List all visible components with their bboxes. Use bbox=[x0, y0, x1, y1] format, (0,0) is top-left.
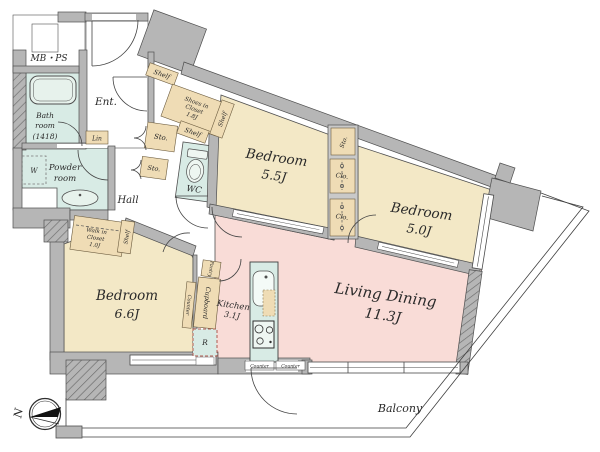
counter-tab-left-label: Counter bbox=[250, 364, 269, 370]
kitchen-board bbox=[263, 290, 275, 316]
powder-sink bbox=[62, 190, 98, 206]
powder-faucet bbox=[79, 194, 82, 197]
gap-entrance bbox=[92, 14, 136, 20]
floorplan-svg: N MB・PS Bath room (1418) Ent. Hall Lin P… bbox=[0, 0, 600, 452]
wall-balcony-hatched-block bbox=[66, 360, 106, 400]
north-compass: N bbox=[11, 399, 61, 430]
refrigerator-label: R bbox=[201, 338, 208, 347]
bathtub bbox=[30, 76, 76, 104]
storage2-door-b bbox=[131, 170, 141, 179]
kitchen-stove bbox=[253, 321, 274, 348]
powder-label-2: room bbox=[54, 174, 76, 184]
compass-north-label: N bbox=[11, 407, 26, 420]
entrance-floor bbox=[86, 21, 148, 148]
wall-powder-hall bbox=[108, 146, 115, 210]
hall-label: Hall bbox=[116, 195, 138, 206]
under-ref-box bbox=[196, 357, 214, 365]
stove-dot bbox=[269, 341, 271, 343]
window-ld-bottom bbox=[308, 362, 460, 373]
storage2-door-a bbox=[131, 160, 141, 170]
kitchen-faucet bbox=[265, 276, 268, 279]
svg-text:Bedroom: Bedroom bbox=[95, 288, 158, 304]
balcony-door-arc bbox=[251, 368, 297, 414]
wall-bed66-left bbox=[50, 238, 64, 360]
bath-label-1: Bath bbox=[35, 111, 54, 120]
wall-left-hatched bbox=[13, 70, 26, 150]
balcony-block bbox=[56, 426, 82, 438]
wall-corner-hatched bbox=[44, 220, 68, 242]
bath-label-3: (1418) bbox=[33, 132, 58, 141]
svg-text:6.6J: 6.6J bbox=[115, 306, 141, 321]
linen-label: Lin bbox=[91, 136, 102, 143]
washer-label: W bbox=[30, 167, 38, 175]
mbps-label: MB・PS bbox=[29, 54, 67, 64]
floorplan-page: N MB・PS Bath room (1418) Ent. Hall Lin P… bbox=[0, 0, 600, 452]
wall-left-lower bbox=[13, 148, 22, 210]
mbps-shaft bbox=[32, 24, 58, 52]
bath-label-2: room bbox=[35, 121, 55, 130]
wall-topleft-block bbox=[58, 12, 86, 22]
powder-label-1: Powder bbox=[48, 163, 82, 173]
counter-tab-right-label: Counter bbox=[281, 364, 300, 370]
balcony-label: Balcony bbox=[377, 402, 423, 415]
wall-mbps-bottom bbox=[13, 66, 79, 73]
entrance-label: Ent. bbox=[94, 96, 117, 108]
